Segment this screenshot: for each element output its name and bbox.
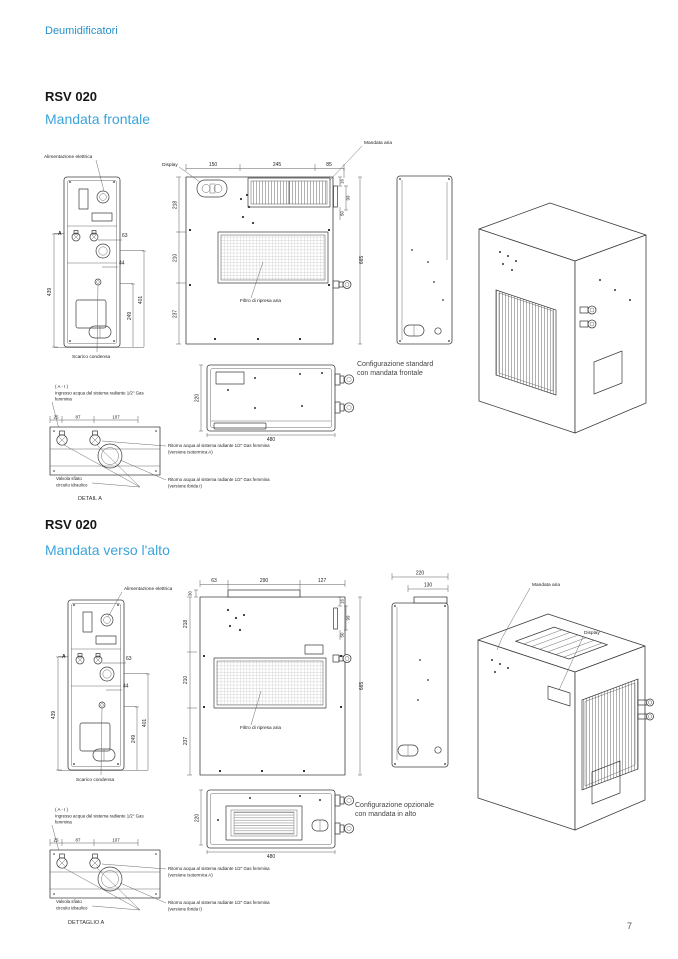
dim-front-height: 665 xyxy=(359,256,365,265)
dim-front-left-1: 218 xyxy=(183,620,189,629)
back-view: 439 63 44 249 401 A Alimentazione elettr… xyxy=(51,586,173,783)
label-ingresso-1: Ingresso acqua dal sistema radiante 1/2"… xyxy=(55,814,144,819)
label-display: Display xyxy=(162,162,178,168)
label-valvola-2: circuito idraulico xyxy=(56,906,88,911)
label-valvola-2: circuito idraulico xyxy=(56,483,88,488)
page-number: 7 xyxy=(627,921,632,931)
label-ritorno-isotermica-2: (versione isotermica A) xyxy=(168,873,213,878)
dim-front-left-2: 210 xyxy=(183,676,189,685)
dim-front-left-3: 237 xyxy=(183,737,189,746)
dim-front-right-1: 16 xyxy=(340,599,345,604)
label-valvola-1: Valvola sfiato xyxy=(56,899,82,904)
document-page: Deumidificatori RSV 020 Mandata frontale xyxy=(0,0,678,959)
dim-front-top-3: 127 xyxy=(318,578,327,584)
config-line-1: Configurazione standard xyxy=(357,361,433,368)
dim-back-63: 63 xyxy=(126,656,132,662)
dim-front-right-2: 99 xyxy=(346,195,351,200)
label-alimentazione: Alimentazione elettrica xyxy=(124,586,173,592)
label-ingresso-2: femmina xyxy=(55,820,72,825)
config-line-2: con mandata frontale xyxy=(357,370,423,377)
dim-front-right-1: 16 xyxy=(340,179,345,184)
page-header: Deumidificatori xyxy=(45,25,118,37)
label-alimentazione: Alimentazione elettrica xyxy=(44,154,93,160)
dim-plan-width: 480 xyxy=(267,854,276,860)
dim-front-top-2: 245 xyxy=(273,162,282,168)
section1-subtitle: Mandata frontale xyxy=(45,111,150,127)
front-view: 150 245 85 218 210 237 16 99 50 665 Disp… xyxy=(162,140,392,344)
dim-front-top-3: 85 xyxy=(326,162,332,168)
dim-back-44: 44 xyxy=(123,684,129,690)
dim-front-left-3: 237 xyxy=(173,310,179,319)
config-line-2: con mandata in alto xyxy=(355,811,416,818)
marker-a: A xyxy=(62,654,66,660)
section2-subtitle: Mandata verso l'alto xyxy=(45,542,170,558)
dim-back-249: 249 xyxy=(131,735,137,744)
front-view: 63 290 127 30 218 210 237 16 99 50 665 F… xyxy=(183,578,365,775)
label-scarico: Scarico condensa xyxy=(72,354,110,360)
marker-a: A xyxy=(58,231,62,237)
dim-back-height: 439 xyxy=(51,711,57,720)
label-filtro: Filtro di ripresa aria xyxy=(240,725,281,731)
dim-front-top-1: 63 xyxy=(211,578,217,584)
filter-grille xyxy=(218,232,328,283)
side-view: 220 130 xyxy=(392,571,448,768)
detail-ref: ( A - I ) xyxy=(55,807,68,812)
isometric-view xyxy=(479,203,646,433)
filter-grille xyxy=(214,658,326,708)
detail-ref: ( A - I ) xyxy=(55,384,68,389)
dim-back-63: 63 xyxy=(122,233,128,239)
label-ritorno-isotermica-1: Ritorno acqua al sistema radiante 1/2" G… xyxy=(168,866,270,871)
dim-back-44: 44 xyxy=(119,261,125,267)
dim-front-left-2: 210 xyxy=(173,254,179,263)
supply-grille xyxy=(248,178,330,207)
section1-drawings: 439 63 44 249 401 A Alimentazione elettr… xyxy=(0,140,678,512)
top-outlet xyxy=(228,590,300,597)
dim-plan-depth: 220 xyxy=(195,394,201,403)
label-ritorno-ibrida-1: Ritorno acqua al sistema radiante 1/2" G… xyxy=(168,477,270,482)
dim-front-right-3: 50 xyxy=(340,211,345,216)
dim-back-401: 401 xyxy=(138,296,144,305)
label-ingresso-1: Ingresso acqua dal sistema radiante 1/2"… xyxy=(55,391,144,396)
config-line-1: Configurazione opzionale xyxy=(355,802,434,809)
pipe-fitting xyxy=(333,281,351,289)
label-ritorno-isotermica-2: (versione isotermica A) xyxy=(168,450,213,455)
label-scarico: Scarico condensa xyxy=(76,777,114,783)
dim-front-height: 665 xyxy=(359,682,365,691)
dim-detail-2: 87 xyxy=(76,415,81,420)
label-ritorno-ibrida-2: (versione ibrida I) xyxy=(168,907,202,912)
dim-detail-3: 107 xyxy=(112,838,120,843)
plan-view: 220 480 xyxy=(195,365,354,443)
label-mandata-aria: Mandata aria xyxy=(364,140,392,146)
side-view xyxy=(397,176,452,344)
dim-side-top-1: 220 xyxy=(416,571,425,577)
detail-title: DETTAGLIO A xyxy=(68,920,105,926)
section2-drawings: 439 63 44 249 401 A Alimentazione elettr… xyxy=(0,565,678,935)
config-note: Configurazione standard con mandata fron… xyxy=(357,361,433,377)
dim-front-left-1: 218 xyxy=(173,201,179,210)
dim-front-right-2: 99 xyxy=(346,615,351,620)
label-display: Display xyxy=(584,630,600,636)
dim-detail-3: 107 xyxy=(112,415,120,420)
dim-front-top-1: 150 xyxy=(209,162,218,168)
config-note: Configurazione opzionale con mandata in … xyxy=(355,802,434,818)
plan-view: 220 480 xyxy=(195,790,354,860)
dim-side-top-2: 130 xyxy=(424,583,433,589)
dim-front-right-3: 50 xyxy=(340,632,345,637)
back-view: 439 63 44 249 401 A Alimentazione elettr… xyxy=(44,154,146,360)
dim-detail-1: 25 xyxy=(54,838,59,843)
label-filtro: Filtro di ripresa aria xyxy=(240,298,281,304)
section2-title: RSV 020 xyxy=(45,517,97,532)
label-ritorno-ibrida-1: Ritorno acqua al sistema radiante 1/2" G… xyxy=(168,900,270,905)
label-ingresso-2: femmina xyxy=(55,397,72,402)
dim-detail-1: 25 xyxy=(54,415,59,420)
plan-fittings xyxy=(335,374,354,413)
dim-back-401: 401 xyxy=(142,719,148,728)
label-valvola-1: Valvola sfiato xyxy=(56,476,82,481)
dim-back-height: 439 xyxy=(47,288,53,297)
section1-title: RSV 020 xyxy=(45,89,97,104)
label-ritorno-ibrida-2: (versione ibrida I) xyxy=(168,484,202,489)
dim-front-top-2: 290 xyxy=(260,578,269,584)
dim-back-249: 249 xyxy=(127,312,133,321)
label-ritorno-isotermica-1: Ritorno acqua al sistema radiante 1/2" G… xyxy=(168,443,270,448)
dim-outlet-offset: 30 xyxy=(188,591,193,596)
detail-title: DETAIL A xyxy=(78,496,102,502)
dim-plan-depth: 220 xyxy=(195,814,201,823)
isometric-view: Mandata aria Display xyxy=(478,582,654,830)
plan-fittings xyxy=(335,795,354,834)
label-mandata-aria: Mandata aria xyxy=(532,582,560,588)
dim-detail-2: 87 xyxy=(76,838,81,843)
